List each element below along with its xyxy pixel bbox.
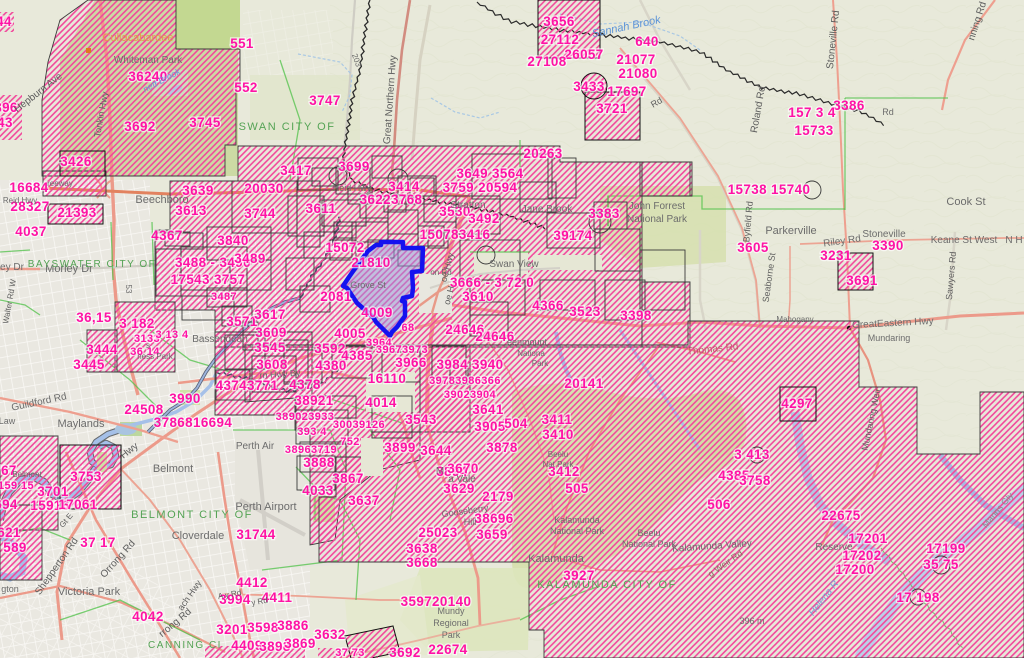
svg-text:3638: 3638 (406, 541, 438, 556)
svg-text:4367: 4367 (151, 228, 182, 243)
svg-text:Law: Law (0, 416, 16, 426)
svg-text:3759 20594: 3759 20594 (443, 180, 518, 195)
svg-text:Reid Hwy: Reid Hwy (333, 183, 372, 193)
svg-text:3523: 3523 (569, 304, 600, 319)
svg-text:Regional: Regional (433, 618, 469, 628)
svg-text:17543 3757: 17543 3757 (171, 272, 246, 287)
svg-text:3231: 3231 (820, 248, 852, 263)
svg-text:159 15: 159 15 (0, 480, 34, 492)
svg-text:20030: 20030 (244, 181, 283, 196)
svg-text:Beechboro: Beechboro (135, 194, 188, 206)
svg-text:22675: 22675 (821, 508, 860, 523)
svg-text:4412: 4412 (236, 575, 267, 590)
svg-text:Park: Park (442, 630, 461, 640)
svg-text:3758: 3758 (739, 473, 771, 488)
svg-text:157 3 4: 157 3 4 (788, 105, 836, 120)
svg-text:Mundaring: Mundaring (868, 333, 911, 343)
svg-text:68: 68 (401, 322, 414, 334)
svg-text:506: 506 (707, 497, 731, 512)
svg-text:3691: 3691 (846, 273, 878, 288)
svg-text:3433: 3433 (573, 79, 604, 94)
svg-text:Kalamunda: Kalamunda (554, 515, 600, 525)
svg-text:3632: 3632 (314, 627, 345, 642)
svg-text:4380: 4380 (315, 358, 346, 373)
svg-text:M: M (436, 466, 444, 477)
svg-text:15738 15740: 15738 15740 (728, 182, 811, 197)
svg-text:Mundy: Mundy (437, 606, 465, 616)
svg-text:3 13 4: 3 13 4 (156, 329, 189, 341)
svg-text:43: 43 (0, 115, 13, 130)
svg-text:ness Park: ness Park (137, 352, 174, 361)
svg-text:Reid Hwy: Reid Hwy (3, 196, 37, 205)
svg-text:27112: 27112 (541, 32, 580, 47)
svg-text:Grove St: Grove St (350, 280, 386, 290)
svg-text:36223768: 36223768 (360, 192, 423, 207)
svg-text:N H: N H (1005, 235, 1022, 246)
svg-text:Stratton: Stratton (450, 200, 485, 211)
svg-text:SWAN CITY OF: SWAN CITY OF (239, 121, 336, 133)
svg-text:621: 621 (0, 525, 21, 540)
svg-text:3840: 3840 (217, 233, 248, 248)
svg-text:3609: 3609 (255, 325, 286, 340)
svg-text:3641: 3641 (472, 402, 504, 417)
svg-text:4005: 4005 (334, 326, 366, 341)
svg-text:25023: 25023 (418, 525, 457, 540)
svg-text:16684: 16684 (9, 180, 48, 195)
svg-text:KALAMUNDA CITY OF: KALAMUNDA CITY OF (537, 579, 677, 591)
svg-text:3869: 3869 (284, 636, 315, 651)
svg-text:3867: 3867 (332, 471, 363, 486)
svg-text:393 4: 393 4 (297, 426, 327, 438)
svg-text:3610: 3610 (462, 289, 493, 304)
svg-text:3383: 3383 (588, 206, 619, 221)
svg-text:31744: 31744 (236, 527, 275, 542)
svg-text:eenmount: eenmount (507, 337, 548, 347)
svg-text:589: 589 (3, 540, 27, 555)
svg-text:3398: 3398 (620, 308, 652, 323)
svg-text:BAYSWATER CITY OF: BAYSWATER CITY OF (28, 259, 156, 270)
svg-text:Nationa: Nationa (517, 349, 545, 358)
svg-text:3444: 3444 (86, 342, 118, 357)
svg-text:3543: 3543 (405, 412, 436, 427)
svg-text:John Forrest: John Forrest (629, 201, 685, 212)
svg-text:Bassendean: Bassendean (192, 334, 248, 345)
svg-text:3656: 3656 (543, 14, 574, 29)
svg-text:3649 3564: 3649 3564 (457, 166, 524, 181)
svg-text:21810: 21810 (351, 255, 390, 270)
svg-text:3611: 3611 (306, 201, 337, 216)
svg-text:Beelu: Beelu (637, 528, 660, 538)
svg-text:National Park: National Park (622, 539, 677, 549)
svg-text:3571: 3571 (226, 314, 258, 329)
svg-text:504: 504 (504, 416, 528, 431)
svg-text:2081: 2081 (320, 289, 352, 304)
svg-text:4378: 4378 (289, 377, 321, 392)
svg-text:3899: 3899 (384, 440, 415, 455)
svg-text:3878: 3878 (486, 440, 518, 455)
svg-text:Mahogany: Mahogany (776, 315, 813, 324)
svg-text:CANNING CI: CANNING CI (148, 640, 222, 651)
svg-text:Victoria Park: Victoria Park (58, 586, 121, 598)
svg-text:gton: gton (1, 584, 19, 594)
svg-text:15733: 15733 (794, 123, 833, 138)
svg-text:Whiteman Park: Whiteman Park (114, 55, 183, 66)
svg-text:15072: 15072 (325, 240, 364, 255)
svg-text:3905: 3905 (474, 419, 506, 434)
svg-text:3637: 3637 (348, 493, 379, 508)
svg-text:17 198: 17 198 (896, 590, 940, 605)
svg-text:396 m: 396 m (739, 616, 764, 626)
svg-text:21393: 21393 (57, 205, 96, 220)
svg-text:37 73: 37 73 (335, 647, 365, 658)
svg-text:3886: 3886 (277, 618, 308, 633)
svg-text:3445: 3445 (73, 357, 105, 372)
svg-text:39174: 39174 (553, 228, 592, 243)
svg-text:Kalamunda: Kalamunda (528, 553, 585, 565)
svg-text:Perth Air: Perth Air (236, 441, 275, 452)
svg-text:35 75: 35 75 (923, 557, 959, 572)
svg-text:4409: 4409 (231, 638, 262, 653)
svg-text:3 182: 3 182 (119, 316, 155, 331)
svg-text:3721: 3721 (596, 101, 628, 116)
svg-text:752: 752 (340, 436, 360, 448)
svg-text:3644: 3644 (420, 443, 452, 458)
svg-text:4366: 4366 (532, 298, 563, 313)
svg-text:Cloverdale: Cloverdale (172, 530, 225, 542)
svg-text:Jane Brook: Jane Brook (522, 204, 574, 215)
svg-text:Keane St West: Keane St West (931, 235, 998, 246)
svg-text:3990: 3990 (169, 391, 200, 406)
svg-text:Belmont: Belmont (12, 470, 42, 479)
svg-text:4033: 4033 (302, 483, 333, 498)
svg-text:37 17: 37 17 (80, 535, 116, 550)
svg-text:22674: 22674 (428, 642, 467, 657)
svg-text:17697: 17697 (607, 84, 646, 99)
svg-text:3410: 3410 (542, 427, 573, 442)
svg-text:3201: 3201 (216, 622, 248, 637)
svg-text:3747: 3747 (309, 93, 340, 108)
svg-text:4297: 4297 (781, 396, 812, 411)
svg-text:694: 694 (0, 497, 18, 512)
svg-text:Maylands: Maylands (57, 418, 105, 430)
svg-text:3699: 3699 (338, 159, 369, 174)
svg-text:3786816694: 3786816694 (154, 415, 233, 430)
svg-text:4042: 4042 (132, 609, 163, 624)
svg-text:3744: 3744 (244, 206, 276, 221)
svg-text:3487: 3487 (211, 291, 237, 303)
svg-text:2179: 2179 (482, 489, 513, 504)
svg-text:27108: 27108 (527, 54, 566, 69)
svg-text:39783986366: 39783986366 (429, 375, 501, 387)
svg-text:53: 53 (124, 285, 133, 294)
svg-text:reeway: reeway (47, 179, 73, 188)
svg-text:3386: 3386 (833, 98, 864, 113)
svg-text:16110: 16110 (368, 371, 407, 386)
svg-text:3659: 3659 (476, 527, 507, 542)
svg-text:552: 552 (234, 80, 258, 95)
svg-text:BELMONT CITY OF: BELMONT CITY OF (131, 509, 253, 521)
svg-text:3598: 3598 (247, 620, 279, 635)
svg-text:4009: 4009 (361, 305, 392, 320)
svg-text:National Park: National Park (627, 214, 688, 225)
svg-text:National Park: National Park (550, 526, 605, 536)
svg-text:3888: 3888 (303, 455, 335, 470)
svg-text:Belmont: Belmont (153, 463, 193, 475)
svg-text:3492: 3492 (468, 211, 499, 226)
svg-text:20141: 20141 (564, 376, 603, 391)
svg-text:Beelu: Beelu (548, 450, 568, 459)
svg-text:3668: 3668 (406, 555, 438, 570)
svg-text:3966: 3966 (395, 355, 426, 370)
svg-text:17061: 17061 (58, 497, 97, 512)
svg-text:36,15: 36,15 (76, 310, 112, 325)
svg-text:30039126: 30039126 (333, 419, 385, 431)
svg-text:Stoneville: Stoneville (862, 229, 906, 240)
svg-text:Cook St: Cook St (946, 196, 985, 208)
svg-text:20263: 20263 (523, 146, 562, 161)
svg-text:3 413: 3 413 (734, 447, 770, 462)
svg-text:3753: 3753 (70, 469, 101, 484)
svg-text:ey Dr: ey Dr (0, 262, 25, 273)
svg-text:44: 44 (0, 14, 12, 29)
svg-text:39023904: 39023904 (444, 389, 497, 401)
svg-text:640: 640 (635, 34, 659, 49)
svg-text:389023933: 389023933 (276, 411, 335, 423)
svg-text:Rd: Rd (882, 107, 894, 117)
svg-text:3545: 3545 (254, 340, 286, 355)
svg-text:505: 505 (565, 481, 589, 496)
svg-text:Park: Park (532, 359, 549, 368)
svg-text:3390: 3390 (872, 238, 903, 253)
svg-text:17200: 17200 (835, 562, 874, 577)
svg-text:3666 - 3 72 0: 3666 - 3 72 0 (450, 275, 534, 290)
svg-text:3984 3940: 3984 3940 (437, 357, 504, 372)
svg-text:Reserve: Reserve (815, 542, 853, 553)
svg-text:a Vale: a Vale (448, 474, 476, 485)
svg-text:43743771: 43743771 (216, 378, 279, 393)
svg-text:Cullacabardee: Cullacabardee (103, 32, 174, 44)
svg-text:Hill: Hill (464, 517, 477, 527)
svg-text:s: s (146, 341, 150, 350)
svg-text:3617: 3617 (254, 307, 285, 322)
svg-text:17201: 17201 (848, 531, 887, 546)
svg-text:Parkerville: Parkerville (765, 225, 816, 237)
svg-text:150783416: 150783416 (420, 227, 491, 242)
svg-text:21080: 21080 (618, 66, 657, 81)
svg-text:4037: 4037 (15, 224, 46, 239)
svg-text:3745: 3745 (189, 115, 221, 130)
svg-text:Nat Park: Nat Park (542, 460, 574, 469)
svg-text:3692: 3692 (124, 119, 155, 134)
svg-text:551: 551 (230, 36, 254, 51)
svg-text:4014: 4014 (365, 395, 397, 410)
svg-text:26057: 26057 (564, 47, 603, 62)
svg-text:21077: 21077 (616, 52, 655, 67)
svg-text:38921: 38921 (294, 393, 333, 408)
svg-text:17199: 17199 (926, 541, 965, 556)
svg-text:Swan View: Swan View (489, 259, 539, 270)
svg-text:3417: 3417 (280, 163, 311, 178)
svg-text:3489: 3489 (234, 251, 265, 266)
svg-text:3411: 3411 (542, 412, 573, 427)
svg-text:3426: 3426 (60, 154, 91, 169)
svg-text:3692: 3692 (389, 645, 420, 658)
